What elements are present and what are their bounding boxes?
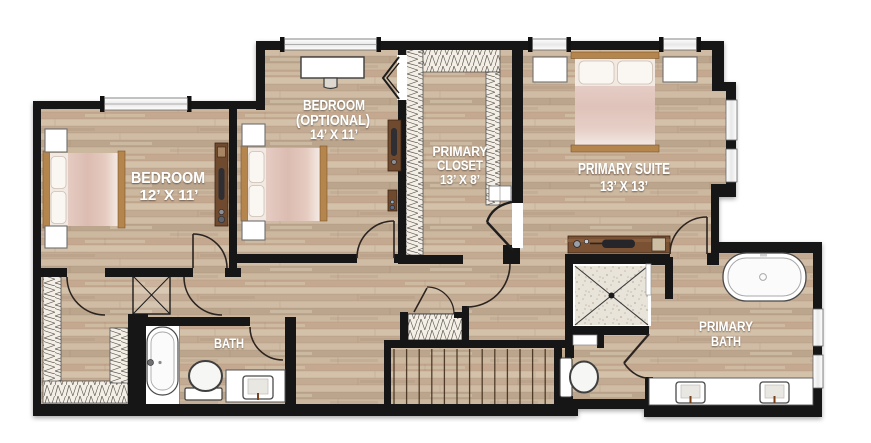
svg-text:CLOSET: CLOSET (437, 158, 484, 173)
svg-text:14’ X 11’: 14’ X 11’ (310, 126, 358, 142)
svg-text:12’ X 11’: 12’ X 11’ (140, 187, 199, 204)
svg-text:13’ X 8’: 13’ X 8’ (440, 172, 480, 187)
svg-text:PRIMARY: PRIMARY (699, 319, 753, 334)
svg-text:BEDROOM: BEDROOM (131, 170, 205, 187)
svg-text:PRIMARY: PRIMARY (433, 144, 488, 159)
svg-text:13’ X 13’: 13’ X 13’ (600, 179, 648, 195)
svg-text:PRIMARY SUITE: PRIMARY SUITE (578, 161, 670, 178)
svg-text:BATH: BATH (214, 336, 244, 351)
svg-text:BEDROOM: BEDROOM (303, 98, 365, 114)
svg-text:BATH: BATH (711, 334, 741, 349)
